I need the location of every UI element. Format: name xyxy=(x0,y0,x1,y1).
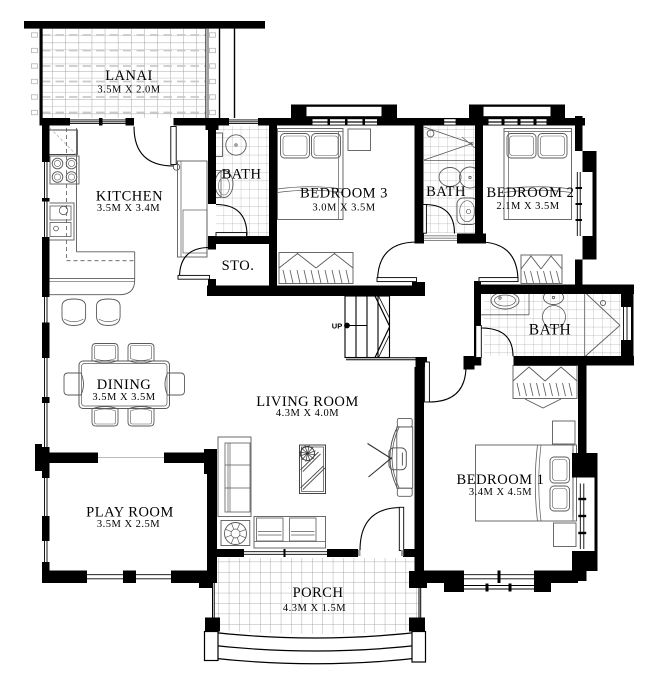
svg-text:3.5M X 2.0M: 3.5M X 2.0M xyxy=(97,85,160,96)
svg-text:LANAI: LANAI xyxy=(105,68,153,84)
svg-text:PORCH: PORCH xyxy=(293,585,344,601)
svg-text:BEDROOM 3: BEDROOM 3 xyxy=(300,186,388,202)
svg-text:DINING: DINING xyxy=(97,377,152,393)
svg-text:BATH: BATH xyxy=(426,184,466,200)
svg-text:2.1M X 3.5M: 2.1M X 3.5M xyxy=(496,201,559,212)
svg-text:BEDROOM 1: BEDROOM 1 xyxy=(457,472,545,488)
svg-text:BATH: BATH xyxy=(222,167,262,183)
svg-text:3.4M X 4.5M: 3.4M X 4.5M xyxy=(469,487,532,498)
svg-text:3.5M X 3.4M: 3.5M X 3.4M xyxy=(97,203,160,214)
svg-text:UP: UP xyxy=(332,322,342,331)
svg-text:BEDROOM 2: BEDROOM 2 xyxy=(487,185,575,201)
svg-text:BATH: BATH xyxy=(529,322,571,339)
svg-text:3.5M X 3.5M: 3.5M X 3.5M xyxy=(92,392,155,403)
svg-text:STO.: STO. xyxy=(222,258,255,274)
svg-text:4.3M X 1.5M: 4.3M X 1.5M xyxy=(283,603,346,614)
svg-text:3.0M X 3.5M: 3.0M X 3.5M xyxy=(312,203,375,214)
svg-text:4.3M X 4.0M: 4.3M X 4.0M xyxy=(276,408,339,419)
svg-text:3.5M X 2.5M: 3.5M X 2.5M xyxy=(97,519,160,530)
